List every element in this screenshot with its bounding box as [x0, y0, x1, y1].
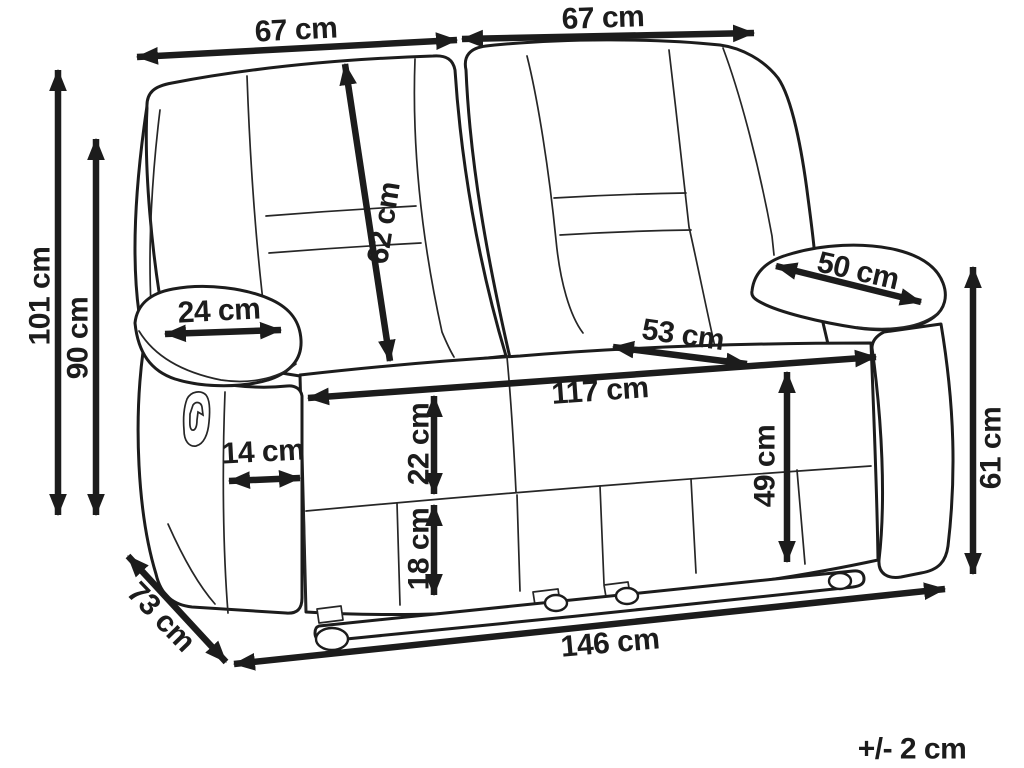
mid-foot-right [616, 588, 638, 604]
sofa-dimension-diagram: 67 cm67 cm101 cm90 cm62 cm24 cm50 cm53 c… [0, 0, 1024, 768]
front-left-foot [316, 628, 348, 650]
tolerance-note: +/- 2 cm [858, 733, 967, 766]
dimension-armrest-pad-width-arrow [165, 330, 281, 334]
left-armrest-body [138, 352, 302, 613]
dimension-armrest-pad-width-label: 24 cm [177, 292, 261, 329]
dimension-seat-cushion-height-label: 22 cm [403, 403, 436, 486]
sofa-outline [135, 40, 953, 650]
right-armrest-body [872, 324, 953, 577]
mid-foot-left [545, 595, 567, 611]
dimension-base-height-label: 18 cm [403, 508, 436, 591]
recliner-lever-icon [184, 392, 210, 446]
dimension-seat-width-label: 117 cm [550, 371, 649, 411]
dimension-backrest-width-right-label: 67 cm [561, 0, 645, 36]
right-backrest [465, 40, 828, 358]
right-foot [829, 573, 851, 589]
dimension-armrest-height-label: 61 cm [975, 407, 1008, 490]
dimension-seat-height-label: 49 cm [749, 425, 782, 508]
dimension-armrest-front-width-arrow [229, 478, 300, 481]
rail-bracket-left [317, 606, 343, 623]
sofa-line-art: 67 cm67 cm101 cm90 cm62 cm24 cm50 cm53 c… [0, 0, 1024, 768]
dimension-total-height-label: 101 cm [24, 247, 57, 346]
dimension-backrest-width-left-label: 67 cm [254, 11, 338, 48]
dimension-backrest-height-label: 90 cm [62, 297, 95, 380]
dimension-armrest-front-width-label: 14 cm [221, 433, 305, 470]
